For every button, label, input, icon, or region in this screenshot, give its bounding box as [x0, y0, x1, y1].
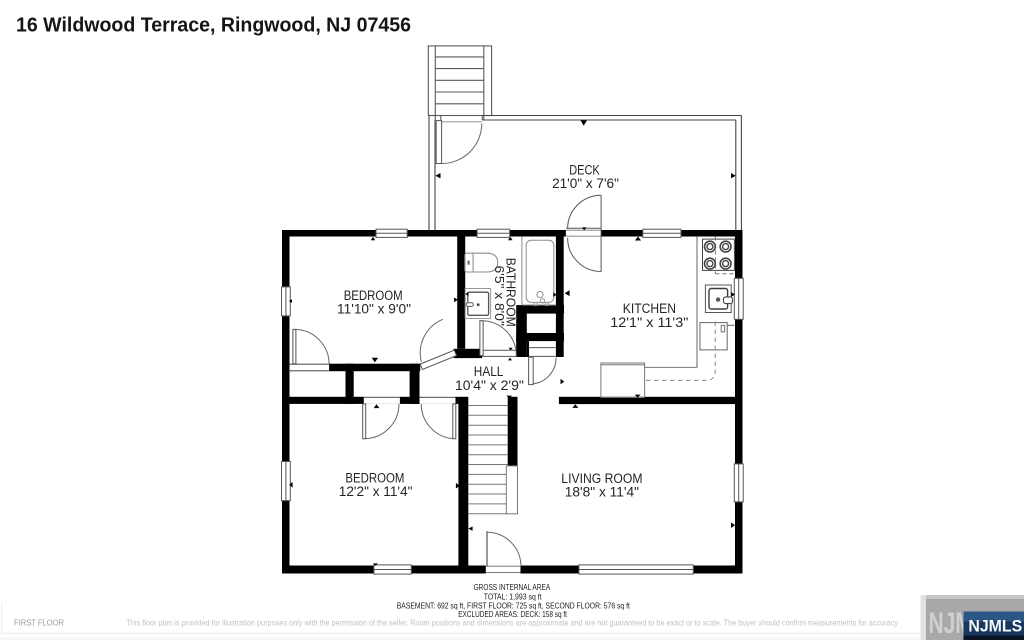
svg-text:HALL: HALL	[474, 364, 504, 379]
svg-text:NJMLS: NJMLS	[968, 616, 1022, 635]
svg-text:This floor plan is provided fo: This floor plan is provided for illustra…	[126, 619, 898, 628]
svg-text:21'0" x 7'6": 21'0" x 7'6"	[552, 176, 619, 191]
svg-text:6'5" x 8'0": 6'5" x 8'0"	[492, 266, 507, 327]
svg-text:FIRST FLOOR: FIRST FLOOR	[14, 619, 64, 628]
svg-text:12'2" x 11'4": 12'2" x 11'4"	[339, 484, 413, 499]
svg-text:KITCHEN: KITCHEN	[623, 301, 676, 316]
svg-text:11'10" x 9'0": 11'10" x 9'0"	[337, 302, 411, 317]
svg-text:16 Wildwood Terrace, Ringwood,: 16 Wildwood Terrace, Ringwood, NJ 07456	[16, 14, 411, 37]
svg-text:10'4" x 2'9": 10'4" x 2'9"	[455, 378, 524, 393]
svg-text:18'8" x 11'4": 18'8" x 11'4"	[565, 485, 639, 500]
svg-text:12'1" x 11'3": 12'1" x 11'3"	[610, 315, 688, 330]
